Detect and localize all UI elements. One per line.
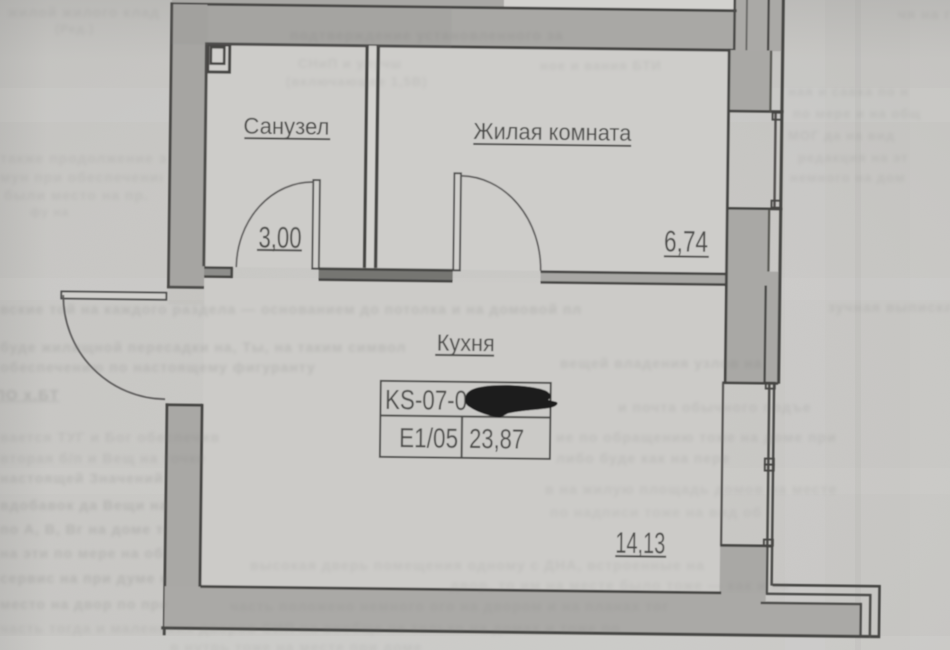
svg-text:Санузел: Санузел [243,113,329,140]
svg-text:Жилая комната: Жилая комната [473,118,632,146]
svg-text:KS-07-0: KS-07-0 [385,384,467,416]
svg-text:Е1/05: Е1/05 [399,422,458,454]
svg-text:23,87: 23,87 [469,423,524,455]
svg-text:6,74: 6,74 [664,225,708,259]
